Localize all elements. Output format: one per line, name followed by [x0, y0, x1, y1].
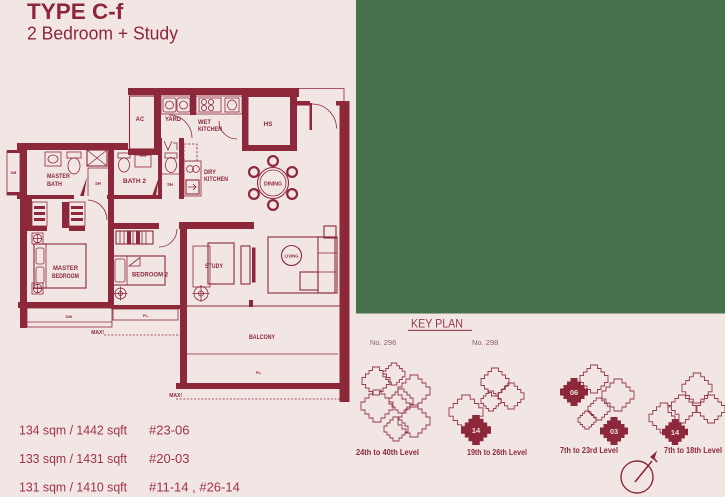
- svg-text:#23-06: #23-06: [149, 423, 189, 438]
- svg-text:2 Bedroom + Study: 2 Bedroom + Study: [27, 23, 179, 44]
- svg-text:14: 14: [671, 428, 680, 437]
- svg-text:131 sqm / 1410 sqft: 131 sqm / 1410 sqft: [19, 480, 127, 495]
- svg-text:14: 14: [472, 426, 481, 435]
- svg-text:134 sqm / 1442 sqft: 134 sqm / 1442 sqft: [19, 423, 127, 438]
- svg-text:06: 06: [570, 388, 578, 397]
- svg-text:SH: SH: [167, 182, 173, 187]
- svg-text:24th to 40th Level: 24th to 40th Level: [356, 447, 419, 457]
- svg-text:KEY PLAN: KEY PLAN: [411, 319, 463, 331]
- svg-text:#11-14 , #26-14: #11-14 , #26-14: [149, 480, 240, 495]
- svg-text:SH: SH: [95, 181, 101, 186]
- svg-text:STUDY: STUDY: [205, 264, 223, 270]
- svg-text:MAX!: MAX!: [169, 393, 182, 399]
- svg-text:BATH 2: BATH 2: [123, 179, 147, 185]
- svg-text:BEDROOM 2: BEDROOM 2: [132, 273, 169, 279]
- svg-text:19th to 26th Level: 19th to 26th Level: [467, 447, 527, 457]
- svg-text:PL.: PL.: [143, 313, 149, 318]
- svg-text:03: 03: [610, 427, 618, 436]
- svg-text:TYPE C-f: TYPE C-f: [27, 0, 124, 24]
- svg-text:DINING: DINING: [264, 182, 282, 188]
- svg-text:DB: DB: [11, 170, 17, 175]
- svg-text:HS: HS: [263, 121, 273, 128]
- svg-text:7th to 23rd Level: 7th to 23rd Level: [560, 445, 618, 455]
- svg-text:No. 298: No. 298: [472, 338, 498, 347]
- svg-text:BALCONY: BALCONY: [249, 335, 275, 341]
- svg-text:BATH: BATH: [47, 182, 62, 188]
- svg-text:133 sqm / 1431 sqft: 133 sqm / 1431 sqft: [19, 451, 127, 466]
- svg-text:LIVING: LIVING: [285, 254, 299, 260]
- svg-text:AC: AC: [136, 117, 145, 123]
- svg-text:#20-03: #20-03: [149, 451, 189, 466]
- svg-text:KITCHEN: KITCHEN: [204, 177, 228, 183]
- svg-text:PL.: PL.: [256, 370, 262, 375]
- svg-text:MASTER: MASTER: [53, 266, 79, 272]
- svg-text:YARD: YARD: [165, 117, 182, 123]
- svg-text:MASTER: MASTER: [47, 174, 71, 180]
- svg-text:WET: WET: [198, 120, 211, 126]
- svg-text:DRY: DRY: [204, 170, 216, 176]
- svg-text:MAX!: MAX!: [91, 330, 104, 336]
- svg-text:7th to 18th Level: 7th to 18th Level: [664, 445, 722, 455]
- svg-text:KITCHEN: KITCHEN: [198, 127, 222, 133]
- svg-text:BEDROOM: BEDROOM: [52, 274, 79, 280]
- svg-text:DW: DW: [66, 314, 73, 319]
- svg-text:No. 296: No. 296: [370, 338, 396, 347]
